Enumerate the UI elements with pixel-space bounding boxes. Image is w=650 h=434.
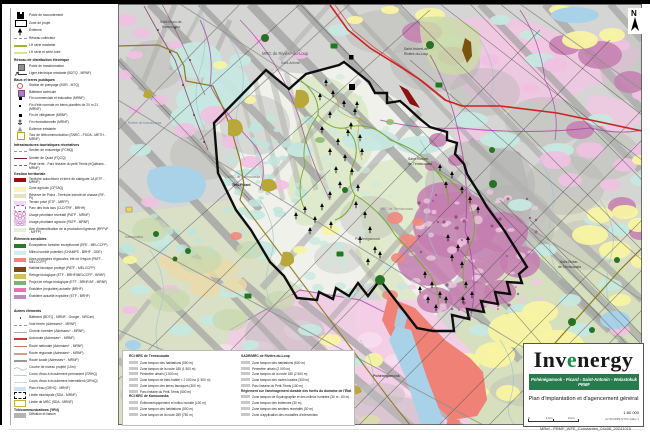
svg-text:N: N — [631, 9, 637, 18]
svg-text:Pohénégamook: Pohénégamook — [373, 374, 400, 378]
svg-text:Saint-Elzéar-: Saint-Elzéar- — [560, 260, 578, 264]
svg-text:Saint-Honoré-: Saint-Honoré- — [408, 157, 429, 161]
svg-text:MRC de Témiscouata: MRC de Témiscouata — [380, 207, 413, 211]
svg-text:Saint-Hubert-de-: Saint-Hubert-de- — [404, 47, 429, 51]
svg-text:Rivière de Kamouraska: Rivière de Kamouraska — [128, 121, 161, 125]
svg-text:Pohénégamook: Pohénégamook — [355, 237, 380, 241]
svg-text:MRC de Kamouraska: MRC de Kamouraska — [228, 175, 261, 179]
svg-text:de-Témiscouata: de-Témiscouata — [558, 265, 581, 269]
svg-text:MRC de Rivière-du-Loup: MRC de Rivière-du-Loup — [262, 51, 309, 56]
svg-text:Très-Picard: Très-Picard — [232, 183, 250, 187]
svg-text:Rivière-du-Loup: Rivière-du-Loup — [404, 52, 428, 56]
svg-text:de-Témiscouata: de-Témiscouata — [408, 162, 432, 166]
svg-text:Saint-Bruno-de-: Saint-Bruno-de- — [160, 20, 183, 24]
svg-text:Kamouraska: Kamouraska — [162, 25, 180, 29]
svg-text:Saint-Antonin: Saint-Antonin — [281, 61, 300, 65]
svg-text:Kamouraska: Kamouraska — [125, 235, 143, 239]
